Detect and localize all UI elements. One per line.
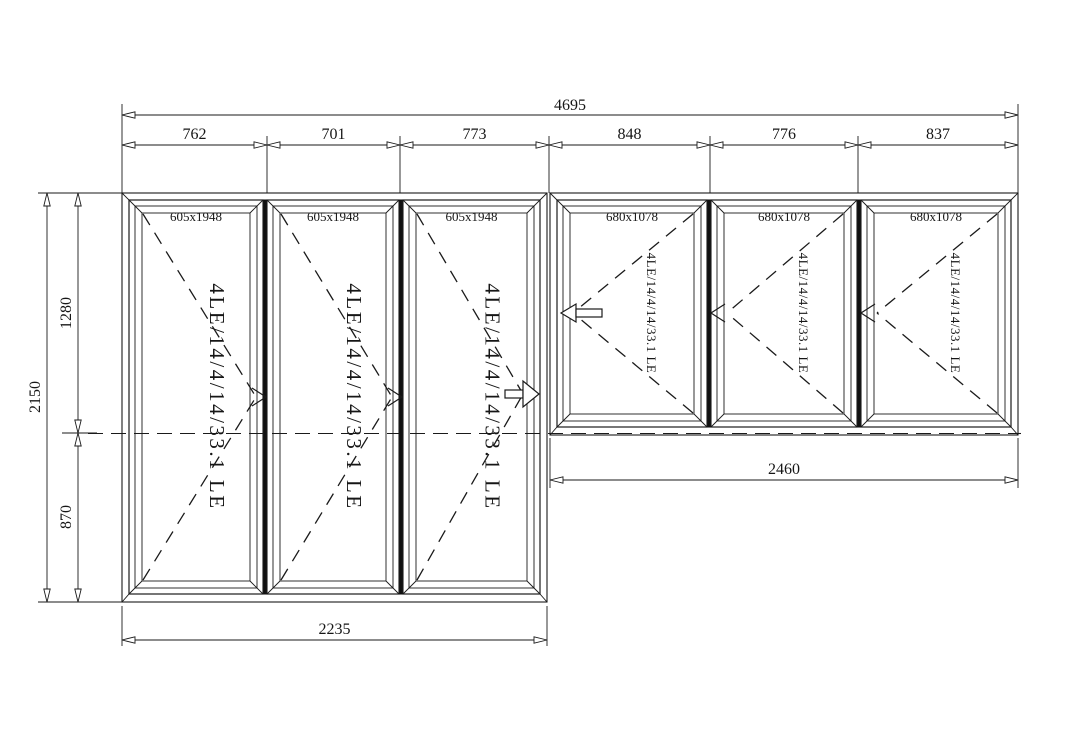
right-panel-3: 680x1078 4LE/14/4/14/33.1 LE	[861, 200, 1011, 427]
panel-size-label: 605x1948	[446, 209, 498, 224]
opening-direction-line	[143, 214, 256, 397]
opening-direction-line	[143, 397, 256, 580]
panel-size-label: 680x1078	[910, 209, 962, 224]
dim-bottom-right: 2460	[768, 461, 800, 478]
dim-segment-4: 848	[618, 126, 642, 143]
right-window-group: 680x1078 4LE/14/4/14/33.1 LE 680x1078 4L…	[550, 193, 1018, 435]
left-panel-2: 605x1948 4LE/14/4/14/33.1 LE	[267, 200, 402, 594]
opening-direction-line	[417, 214, 523, 394]
dim-segment-6: 837	[926, 126, 950, 143]
opening-direction-line	[727, 214, 843, 313]
window-fabrication-drawing: 4695 762 701 773 848 776 837 2150 1280	[0, 0, 1090, 733]
dim-bottom-left: 2235	[319, 621, 351, 638]
right-frame	[550, 193, 1018, 435]
dimensions-top: 4695 762 701 773 848 776 837	[122, 97, 1018, 193]
opening-direction-line	[573, 313, 693, 413]
right-panel-1: 680x1078 4LE/14/4/14/33.1 LE	[557, 200, 707, 427]
dimensions-left: 2150 1280 870	[27, 193, 122, 602]
panel-size-label: 605x1948	[307, 209, 359, 224]
dim-segment-3: 773	[463, 126, 487, 143]
opening-direction-line	[573, 214, 693, 313]
opening-direction-line	[281, 214, 392, 397]
dim-left-lower: 870	[58, 505, 75, 529]
dim-segment-2: 701	[322, 126, 346, 143]
dimensions-bottom: 2235 2460	[122, 438, 1018, 646]
glass-spec-label: 4LE/14/4/14/33.1 LE	[342, 283, 366, 510]
handle-arrow-shaft	[505, 390, 523, 398]
opening-direction-line	[281, 397, 392, 580]
left-panel-3: 605x1948 4LE/14/4/14/33.1 LE	[403, 200, 540, 594]
panel-size-label: 605x1948	[170, 209, 222, 224]
hinge-apex-mark	[711, 304, 725, 322]
glass-spec-label: 4LE/14/4/14/33.1 LE	[481, 283, 505, 510]
glass-spec-label: 4LE/14/4/14/33.1 LE	[796, 253, 811, 374]
glass-spec-label: 4LE/14/4/14/33.1 LE	[205, 283, 229, 510]
drawing-canvas: 4695 762 701 773 848 776 837 2150 1280	[0, 0, 1090, 733]
opening-direction-line	[877, 313, 997, 413]
left-panel-1: 605x1948 4LE/14/4/14/33.1 LE	[129, 200, 266, 594]
dim-left-upper: 1280	[58, 297, 75, 329]
dim-overall-height: 2150	[27, 381, 44, 413]
dim-segment-1: 762	[183, 126, 207, 143]
dim-overall-width: 4695	[554, 97, 586, 114]
right-panel-2: 680x1078 4LE/14/4/14/33.1 LE	[711, 200, 857, 427]
panel-size-label: 680x1078	[606, 209, 658, 224]
opening-direction-line	[727, 313, 843, 413]
handle-arrow-shaft	[576, 309, 602, 317]
glass-spec-label: 4LE/14/4/14/33.1 LE	[644, 253, 659, 374]
dim-segment-5: 776	[772, 126, 796, 143]
hinge-apex-mark	[861, 304, 875, 322]
left-window-group: 605x1948 4LE/14/4/14/33.1 LE 605x1948 4L…	[122, 193, 547, 602]
opening-direction-line	[877, 214, 997, 313]
opening-direction-line	[417, 394, 523, 580]
panel-size-label: 680x1078	[758, 209, 810, 224]
glass-spec-label: 4LE/14/4/14/33.1 LE	[948, 253, 963, 374]
handle-arrow-head	[523, 381, 539, 407]
